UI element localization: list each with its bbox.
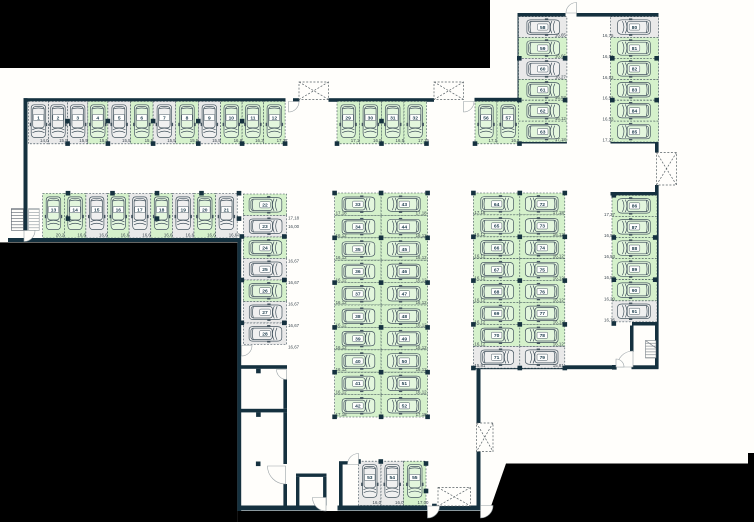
svg-text:50: 50 — [402, 359, 408, 365]
svg-text:16,53: 16,53 — [604, 254, 616, 259]
svg-text:39: 39 — [355, 336, 361, 342]
svg-text:45: 45 — [402, 247, 408, 253]
svg-text:62: 62 — [540, 109, 546, 115]
svg-text:17,27: 17,27 — [604, 212, 616, 217]
svg-text:88: 88 — [632, 246, 638, 252]
svg-text:4: 4 — [96, 115, 99, 121]
svg-text:60: 60 — [540, 67, 546, 73]
svg-text:72: 72 — [540, 202, 546, 208]
svg-text:16,12: 16,12 — [336, 367, 348, 372]
svg-text:34: 34 — [355, 224, 361, 230]
svg-text:20: 20 — [202, 207, 208, 213]
svg-text:67: 67 — [494, 267, 500, 273]
svg-text:36: 36 — [355, 269, 361, 275]
svg-text:16,12: 16,12 — [416, 345, 428, 350]
svg-text:17,18: 17,18 — [416, 210, 428, 215]
svg-text:71: 71 — [494, 355, 500, 361]
svg-text:16,12: 16,12 — [553, 298, 565, 303]
svg-text:44: 44 — [402, 224, 408, 230]
svg-text:83: 83 — [632, 88, 638, 94]
svg-text:17,18: 17,18 — [555, 137, 567, 142]
svg-text:23: 23 — [262, 224, 268, 230]
svg-text:43: 43 — [402, 202, 408, 208]
svg-text:68: 68 — [494, 289, 500, 295]
svg-text:19: 19 — [180, 207, 186, 213]
svg-text:16,12: 16,12 — [336, 300, 348, 305]
svg-text:26: 26 — [262, 289, 268, 295]
svg-text:16,12: 16,12 — [336, 322, 348, 327]
svg-text:74: 74 — [540, 246, 546, 252]
svg-text:54: 54 — [389, 475, 395, 481]
svg-text:16,27: 16,27 — [555, 74, 567, 79]
svg-text:38: 38 — [355, 314, 361, 320]
svg-text:37: 37 — [355, 292, 361, 298]
svg-text:16,12: 16,12 — [474, 298, 486, 303]
svg-text:14: 14 — [72, 207, 78, 213]
svg-text:16,20: 16,20 — [604, 296, 616, 301]
svg-text:80: 80 — [632, 25, 638, 31]
svg-text:17,18: 17,18 — [553, 210, 565, 215]
svg-text:12: 12 — [272, 115, 278, 121]
svg-text:21: 21 — [224, 207, 230, 213]
svg-text:82: 82 — [632, 67, 638, 73]
svg-text:17,18: 17,18 — [474, 210, 486, 215]
svg-text:46: 46 — [402, 269, 408, 275]
svg-text:16,67: 16,67 — [288, 280, 300, 285]
svg-text:6: 6 — [140, 115, 143, 121]
svg-text:81: 81 — [632, 46, 638, 52]
svg-text:17,27: 17,27 — [603, 138, 615, 143]
svg-text:16,12: 16,12 — [336, 345, 348, 350]
svg-text:17,18: 17,18 — [336, 412, 348, 417]
svg-text:16,67: 16,67 — [229, 232, 241, 237]
svg-text:18: 18 — [159, 207, 165, 213]
svg-text:16,67: 16,67 — [288, 344, 300, 349]
svg-text:16,12: 16,12 — [474, 319, 486, 324]
svg-text:17,00: 17,00 — [418, 500, 430, 505]
svg-text:31: 31 — [390, 115, 396, 121]
svg-text:42: 42 — [355, 404, 361, 410]
svg-text:91: 91 — [632, 309, 638, 315]
svg-text:13: 13 — [51, 207, 57, 213]
svg-text:16,12: 16,12 — [474, 232, 486, 237]
svg-text:15,81: 15,81 — [474, 363, 486, 368]
svg-text:5: 5 — [118, 115, 121, 121]
svg-text:87: 87 — [632, 225, 638, 231]
svg-text:78: 78 — [540, 333, 546, 339]
svg-text:1: 1 — [37, 115, 40, 121]
svg-text:17: 17 — [137, 207, 143, 213]
svg-text:64: 64 — [494, 202, 500, 208]
svg-text:2: 2 — [57, 115, 60, 121]
svg-text:30: 30 — [368, 115, 374, 121]
svg-text:56: 56 — [483, 115, 489, 121]
svg-text:47: 47 — [402, 292, 408, 298]
svg-text:51: 51 — [402, 381, 408, 387]
svg-text:16,12: 16,12 — [336, 233, 348, 238]
svg-text:16,75: 16,75 — [603, 33, 615, 38]
svg-text:16,12: 16,12 — [416, 255, 428, 260]
svg-text:65: 65 — [494, 224, 500, 230]
svg-text:16,12: 16,12 — [336, 278, 348, 283]
svg-text:16,12: 16,12 — [336, 255, 348, 260]
svg-text:66: 66 — [494, 246, 500, 252]
svg-text:25: 25 — [262, 267, 268, 273]
svg-text:75: 75 — [540, 267, 546, 273]
svg-text:90: 90 — [632, 288, 638, 294]
svg-text:35: 35 — [355, 247, 361, 253]
svg-text:41: 41 — [355, 381, 361, 387]
svg-text:16,67: 16,67 — [288, 258, 300, 263]
svg-text:16,12: 16,12 — [474, 276, 486, 281]
svg-text:58: 58 — [540, 25, 546, 31]
svg-text:52: 52 — [402, 404, 408, 410]
svg-text:22: 22 — [262, 203, 268, 209]
svg-text:16,67: 16,67 — [288, 323, 300, 328]
svg-text:57: 57 — [505, 115, 511, 121]
svg-text:49: 49 — [402, 336, 408, 342]
svg-text:70: 70 — [494, 333, 500, 339]
svg-text:11: 11 — [250, 115, 255, 121]
svg-text:16,12: 16,12 — [336, 390, 348, 395]
svg-text:59: 59 — [540, 46, 546, 52]
svg-text:16,12: 16,12 — [474, 341, 486, 346]
svg-text:40: 40 — [355, 359, 361, 365]
svg-text:76: 76 — [540, 289, 546, 295]
svg-text:89: 89 — [632, 267, 638, 273]
svg-text:63: 63 — [540, 129, 546, 135]
svg-text:16,65: 16,65 — [555, 33, 567, 38]
svg-text:16,12: 16,12 — [416, 300, 428, 305]
svg-text:69: 69 — [494, 311, 500, 317]
svg-text:85: 85 — [632, 129, 638, 135]
svg-text:15: 15 — [94, 207, 100, 213]
svg-text:10: 10 — [229, 115, 235, 121]
svg-text:86: 86 — [632, 204, 638, 210]
svg-text:16,67: 16,67 — [288, 301, 300, 306]
svg-text:7: 7 — [163, 115, 166, 121]
svg-text:79: 79 — [540, 355, 546, 361]
svg-text:16,53: 16,53 — [603, 117, 615, 122]
svg-text:24: 24 — [262, 246, 268, 252]
svg-text:16: 16 — [116, 207, 122, 213]
svg-text:17,18: 17,18 — [288, 215, 300, 220]
svg-text:53: 53 — [367, 475, 373, 481]
svg-text:16,12: 16,12 — [553, 254, 565, 259]
svg-text:29: 29 — [345, 115, 351, 121]
svg-text:33: 33 — [355, 202, 361, 208]
svg-text:8: 8 — [186, 115, 189, 121]
svg-text:16,12: 16,12 — [416, 390, 428, 395]
svg-text:9: 9 — [208, 115, 211, 121]
svg-text:28: 28 — [262, 332, 268, 338]
svg-text:84: 84 — [632, 109, 638, 115]
svg-text:27: 27 — [262, 310, 268, 316]
svg-text:73: 73 — [540, 224, 546, 230]
svg-text:16,12: 16,12 — [553, 341, 565, 346]
svg-text:3: 3 — [76, 115, 79, 121]
svg-text:16,53: 16,53 — [603, 75, 615, 80]
svg-text:16,12: 16,12 — [555, 116, 567, 121]
svg-text:55: 55 — [412, 475, 418, 481]
svg-text:32: 32 — [412, 115, 418, 121]
svg-text:61: 61 — [540, 88, 546, 94]
svg-text:16,12: 16,12 — [474, 254, 486, 259]
svg-text:48: 48 — [402, 314, 408, 320]
svg-text:16,00: 16,00 — [288, 224, 300, 229]
svg-text:17,18: 17,18 — [336, 210, 348, 215]
svg-text:77: 77 — [540, 311, 546, 317]
